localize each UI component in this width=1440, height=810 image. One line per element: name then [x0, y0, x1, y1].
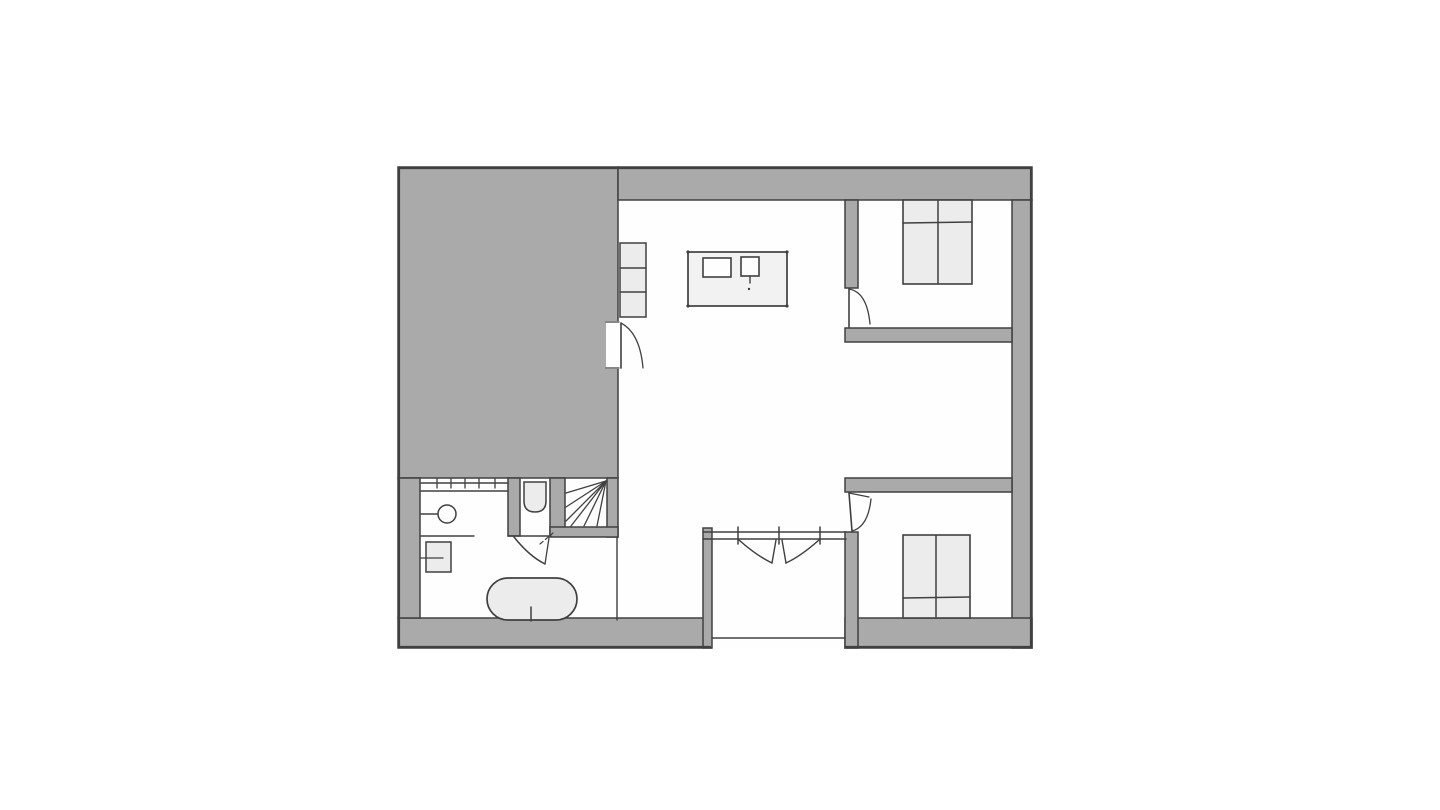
- island-corner-dot-3: [686, 304, 689, 307]
- wall-bedroom1-bottom: [845, 328, 1012, 342]
- wall-vestibule-left: [703, 528, 712, 648]
- wall-stair-bottom: [550, 527, 618, 537]
- wall-right: [1012, 200, 1032, 648]
- wall-bedroom1-left: [845, 200, 858, 288]
- wall-bedroom2-left: [845, 532, 858, 648]
- wall-bottom-left: [398, 618, 711, 648]
- bed-top-pillow-line: [903, 222, 972, 223]
- wall-bedroom2-top: [845, 478, 1012, 492]
- wall-wc-left: [508, 478, 520, 536]
- cooktop: [703, 258, 731, 277]
- toilet: [524, 482, 546, 512]
- wall-top: [618, 167, 1032, 200]
- floor-plan-page: [0, 0, 1440, 810]
- island-corner-dot-1: [686, 250, 689, 253]
- shelf-unit: [620, 243, 646, 317]
- wall-bottom-right: [845, 618, 1032, 648]
- bathroom-cabinet: [426, 542, 451, 572]
- kitchen-sink-dot: [748, 288, 750, 290]
- island-corner-dot-4: [785, 304, 788, 307]
- bathtub: [487, 578, 577, 620]
- washbasin: [438, 505, 456, 523]
- bed-bottom-pillow-line: [903, 597, 970, 598]
- wall-bathroom-left: [398, 478, 420, 618]
- island-corner-dot-2: [785, 250, 788, 253]
- kitchen-sink: [741, 257, 759, 276]
- living-room-door-opening: [606, 321, 619, 369]
- floor-plan-svg: [0, 0, 1440, 810]
- gray-annex-block: [398, 167, 618, 478]
